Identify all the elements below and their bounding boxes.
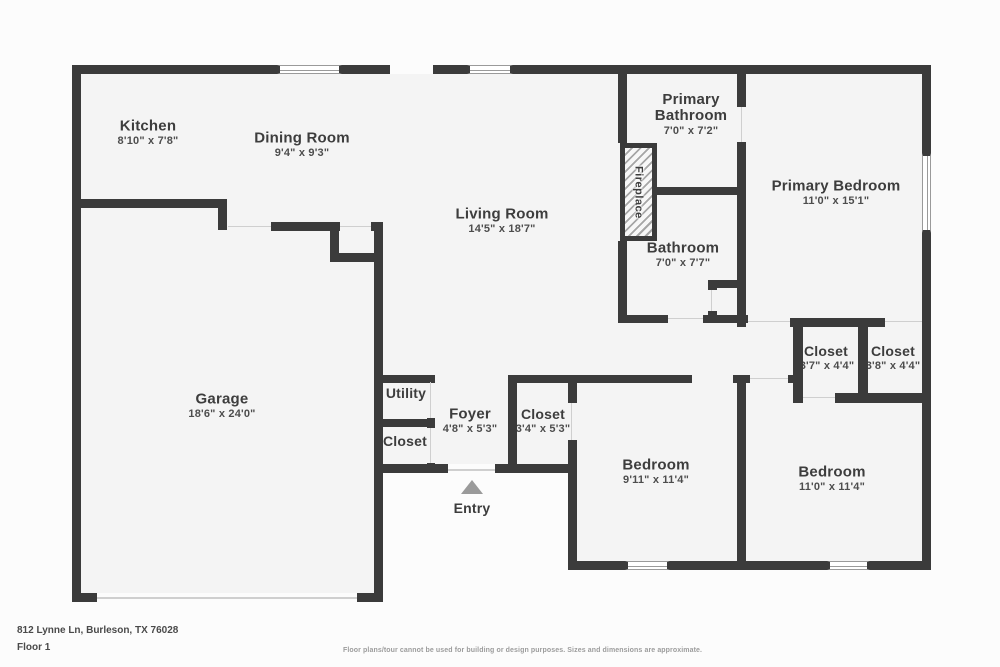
wall-segment (513, 65, 931, 74)
wall-segment (342, 65, 390, 74)
entry-label: Entry (454, 500, 491, 516)
wall-segment (508, 375, 577, 383)
wall-segment (793, 318, 803, 403)
wall-segment (577, 375, 692, 383)
room-label-bedroom-2: Bedroom (798, 464, 865, 481)
wall-segment (708, 311, 717, 323)
door-opening-line (430, 428, 431, 463)
wall-segment (72, 65, 277, 74)
room-dims-dining-room: 9'4" x 9'3" (275, 147, 330, 159)
wall-segment (618, 315, 668, 323)
room-dims-kitchen: 8'10" x 7'8" (118, 135, 179, 147)
wall-segment (670, 561, 827, 570)
wall-segment (708, 280, 717, 290)
wall-segment (790, 318, 885, 327)
wall-segment (835, 393, 922, 403)
wall-segment (858, 327, 868, 393)
door-opening-line (750, 378, 788, 379)
wall-segment (737, 380, 746, 561)
wall-segment (72, 593, 97, 602)
wall-segment (922, 233, 931, 570)
room-dims-closet-1: 3'7" x 4'4" (800, 360, 855, 372)
door-opening-line (448, 469, 495, 471)
wall-segment (218, 199, 227, 230)
window-symbol (922, 153, 931, 233)
room-dims-bedroom-2: 11'0" x 11'4" (799, 481, 865, 493)
room-label-foyer: Foyer (449, 406, 491, 423)
room-label-closet-1: Closet (804, 343, 848, 359)
footer-floor-label: Floor 1 (17, 642, 50, 653)
wall-segment (568, 440, 577, 570)
wall-segment (737, 74, 746, 107)
wall-segment (793, 393, 803, 403)
wall-segment (427, 375, 435, 382)
wall-segment (72, 65, 81, 602)
room-label-kitchen: Kitchen (120, 118, 176, 135)
room-label-garage: Garage (196, 391, 249, 408)
wall-segment (922, 65, 931, 153)
door-opening-line (97, 597, 357, 599)
room-label-utility: Utility (386, 385, 426, 401)
door-opening-line (430, 382, 431, 418)
wall-segment (508, 375, 517, 473)
door-opening-line (340, 226, 371, 227)
wall-segment (788, 375, 793, 383)
room-dims-closet-4: 3'4" x 5'3" (516, 423, 571, 435)
wall-segment (737, 195, 746, 327)
room-dims-foyer: 4'8" x 5'3" (443, 423, 498, 435)
room-dims-closet-2: 3'8" x 4'4" (866, 360, 921, 372)
room-dims-living-room: 14'5" x 18'7" (468, 223, 535, 235)
fireplace: Fireplace (620, 143, 657, 241)
room-label-closet-4: Closet (521, 406, 565, 422)
fireplace-label: Fireplace (633, 166, 645, 219)
room-label-closet-3: Closet (383, 433, 427, 449)
floor-fill-garage (81, 464, 374, 593)
wall-segment (568, 375, 577, 403)
room-dims-bathroom: 7'0" x 7'7" (656, 257, 711, 269)
room-dims-primary-bedroom: 11'0" x 15'1" (803, 195, 870, 207)
room-dims-bedroom-1: 9'11" x 11'4" (623, 474, 689, 486)
door-opening-line (741, 107, 742, 142)
door-opening-line (885, 321, 922, 322)
door-opening-line (711, 290, 712, 311)
door-opening-line (571, 403, 572, 440)
window-symbol (625, 561, 670, 570)
room-label-bedroom-1: Bedroom (622, 457, 689, 474)
wall-segment (655, 187, 745, 195)
door-opening-line (668, 318, 703, 319)
room-label-dining-room: Dining Room (254, 130, 350, 147)
wall-segment (618, 241, 627, 323)
room-label-primary-bedroom: Primary Bedroom (772, 178, 901, 195)
wall-segment (433, 65, 467, 74)
door-opening-line (748, 321, 790, 322)
wall-segment (427, 463, 435, 473)
wall-segment (374, 464, 448, 473)
footer-disclaimer: Floor plans/tour cannot be used for buil… (343, 647, 702, 654)
wall-segment (618, 74, 627, 143)
footer-address: 812 Lynne Ln, Burleson, TX 76028 (17, 625, 178, 636)
window-symbol (277, 65, 342, 74)
room-dims-garage: 18'6" x 24'0" (188, 408, 255, 420)
entry-arrow-icon (461, 480, 483, 494)
door-opening-line (228, 226, 271, 227)
wall-segment (870, 561, 931, 570)
window-symbol (827, 561, 870, 570)
room-dims-primary-bathroom: 7'0" x 7'2" (664, 125, 719, 137)
door-opening-line (803, 397, 835, 398)
room-label-primary-bathroom: Primary Bathroom (645, 92, 737, 124)
wall-segment (383, 419, 435, 427)
window-symbol (467, 65, 513, 74)
room-label-living-room: Living Room (455, 206, 548, 223)
room-label-closet-2: Closet (871, 343, 915, 359)
room-label-bathroom: Bathroom (647, 240, 719, 257)
wall-segment (72, 199, 218, 208)
wall-segment (374, 222, 383, 602)
wall-segment (737, 142, 746, 195)
floor-plan: Fireplace Entry Kitchen 8'10" x 7'8" Din… (0, 0, 1000, 667)
wall-segment (374, 375, 435, 383)
